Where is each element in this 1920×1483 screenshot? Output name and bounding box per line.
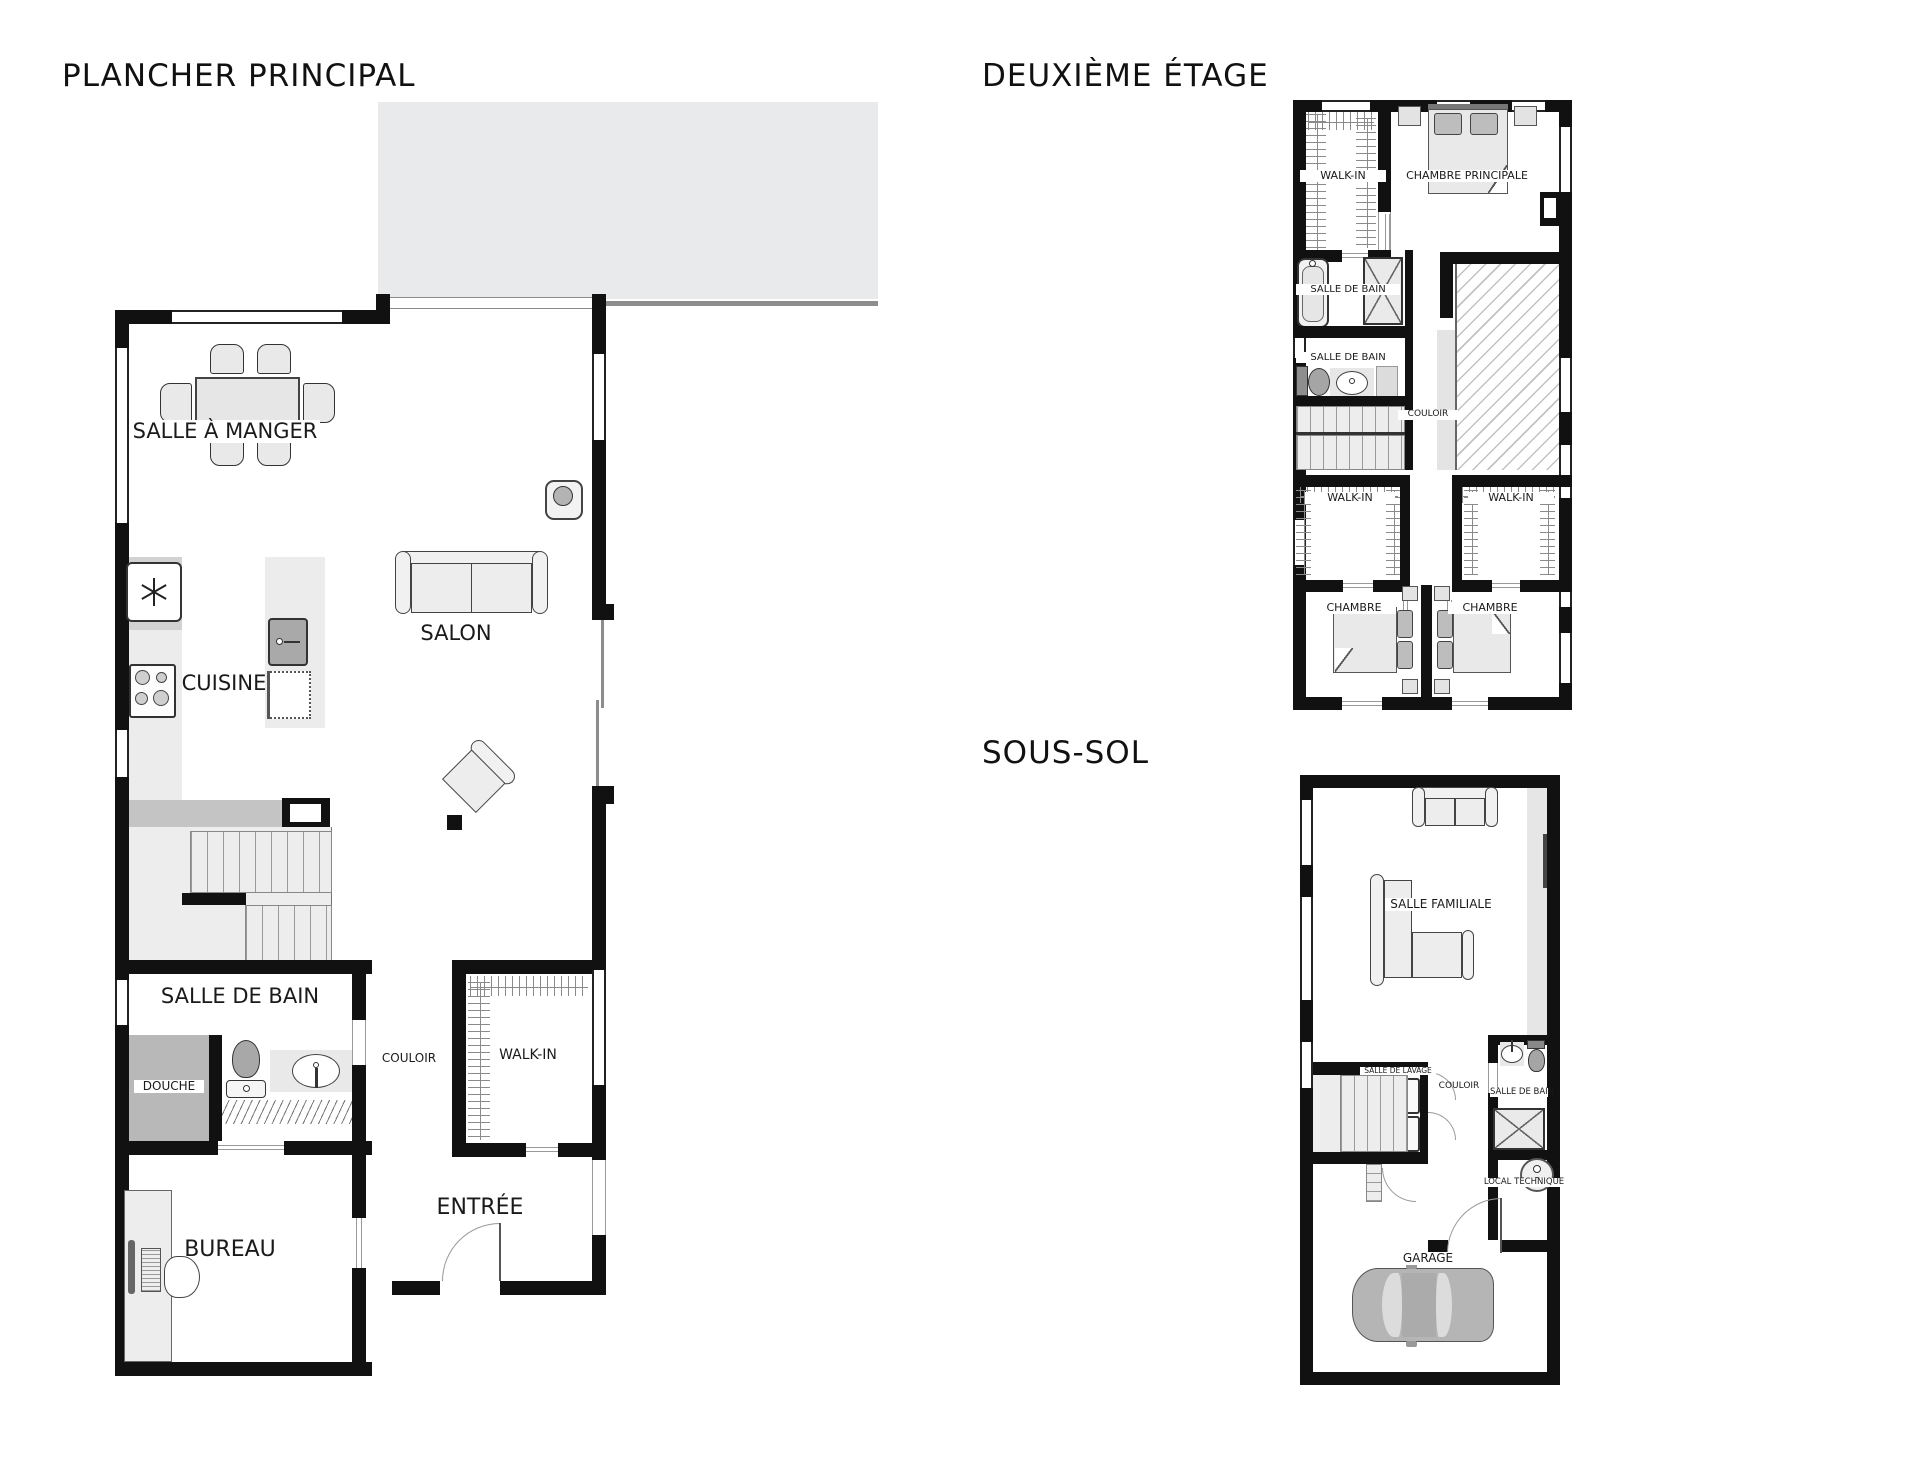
closet-rod-hatch [470, 976, 588, 996]
room-label-family: SALLE FAMILIALE [1385, 898, 1497, 911]
room-label-bathroom-ensuite: SALLE DE BAIN [1296, 284, 1400, 295]
dining-chair [210, 344, 244, 374]
stair-flight-lower [245, 905, 332, 963]
room-label-bathroom-second: SALLE DE BAIN [1296, 352, 1400, 363]
window [115, 730, 129, 777]
wall-segment [1559, 412, 1572, 445]
room-label-walkin-right: WALK-IN [1468, 492, 1554, 504]
wall-segment [1293, 697, 1342, 710]
window [1322, 100, 1370, 112]
wall-segment [592, 604, 614, 620]
window [592, 970, 606, 1085]
dining-chair [257, 344, 291, 374]
window [115, 348, 129, 523]
wall-segment [1300, 1000, 1313, 1042]
wall-segment [1400, 475, 1410, 588]
room-label-walkin-master: WALK-IN [1300, 170, 1386, 182]
stair-flight-upper [190, 831, 332, 893]
wall-segment [1488, 1150, 1557, 1160]
shower-icon [1493, 1108, 1545, 1150]
fridge [126, 562, 182, 622]
window [1559, 633, 1572, 683]
wall-segment [592, 786, 614, 804]
door-opening [352, 1020, 366, 1065]
blanket-fold [1335, 648, 1353, 672]
room-label-living: SALON [420, 622, 492, 645]
wall-segment [592, 294, 606, 354]
wall-segment [352, 1155, 366, 1218]
wall-segment [1488, 697, 1572, 710]
wall-segment [1488, 1035, 1498, 1063]
open-to-below-hatch [1455, 264, 1559, 470]
sofa-cushion [1455, 798, 1485, 826]
closet-hatch [222, 1100, 352, 1124]
shelf [1376, 366, 1398, 398]
sofa-arm [395, 551, 411, 614]
wall-segment [1421, 585, 1432, 697]
wall-segment [115, 960, 372, 974]
toilet-tank [1527, 1040, 1545, 1049]
wall-segment [1559, 498, 1572, 583]
front-door-leaf [499, 1223, 501, 1281]
wall-segment [1452, 580, 1492, 592]
deck-area [378, 102, 878, 299]
wall-segment [209, 1035, 222, 1141]
tv-icon [1543, 834, 1547, 888]
wall-segment [352, 1268, 366, 1376]
wall-segment [284, 1141, 372, 1155]
armchair [438, 737, 519, 818]
sofa-cushion [471, 563, 532, 613]
room-label-master-bedroom: CHAMBRE PRINCIPALE [1402, 170, 1532, 182]
wall-segment [1300, 775, 1313, 800]
floorplan-canvas: PLANCHER PRINCIPAL DEUXIÈME ÉTAGE SOUS-S… [0, 0, 1920, 1483]
nightstand [1434, 679, 1450, 694]
wall-segment [376, 294, 390, 324]
wall-segment [1443, 252, 1572, 264]
faucet-dot [1309, 260, 1316, 267]
main-floor-title: PLANCHER PRINCIPAL [62, 58, 416, 94]
room-label-hall-second: COULOIR [1398, 410, 1458, 420]
room-label-bathroom: SALLE DE BAIN [140, 985, 340, 1008]
stair-half-wall [129, 800, 282, 827]
room-label-entry: ENTRÉE [380, 1196, 580, 1220]
wall-segment [1378, 112, 1391, 212]
pillow [1437, 641, 1453, 669]
stair-flight [1340, 1075, 1408, 1152]
window [1559, 127, 1572, 192]
basement-title: SOUS-SOL [982, 735, 1149, 771]
pillow [1397, 610, 1413, 638]
window [1559, 358, 1572, 412]
wall-segment [1559, 607, 1572, 633]
closet-rod-hatch [1356, 118, 1376, 248]
nightstand [1514, 106, 1537, 126]
room-label-technical: LOCAL TECHNIQUE [1482, 1178, 1566, 1187]
window [1300, 800, 1313, 865]
toilet-flush-dot [243, 1085, 250, 1092]
dining-chair [160, 383, 192, 423]
door-opening [356, 1218, 362, 1268]
sliding-door-panel [596, 700, 599, 792]
burner-icon [135, 670, 150, 685]
sectional-sofa-seat [1412, 932, 1462, 978]
pillow [1437, 610, 1453, 638]
wall-segment [1293, 396, 1405, 406]
fireplace-burner-icon [553, 486, 573, 506]
window-sill [1342, 701, 1382, 706]
wall-segment [392, 1281, 440, 1295]
window [1300, 897, 1313, 1000]
door-opening [1343, 583, 1373, 588]
room-label-shower: DOUCHE [134, 1080, 204, 1093]
wall-segment [1559, 100, 1572, 127]
faucet-handle [1511, 1040, 1513, 1052]
pillow [1434, 113, 1462, 135]
door-swing [1428, 1112, 1456, 1140]
sliding-door-panel [601, 612, 604, 708]
nightstand [1402, 586, 1418, 601]
wall-segment [1547, 775, 1560, 1385]
toilet-icon [232, 1040, 260, 1078]
wall-segment [1313, 1152, 1428, 1164]
keyboard-icon [141, 1248, 161, 1292]
window-sill [592, 1160, 606, 1235]
burner-icon [135, 692, 148, 705]
media-wall [1527, 788, 1547, 1040]
wall-segment [115, 523, 129, 730]
pillow [1397, 641, 1413, 669]
door-swing [1447, 1198, 1502, 1253]
wall-segment [1420, 1075, 1428, 1152]
wall-niche [290, 804, 321, 822]
faucet-lever [284, 641, 300, 643]
wall-segment [1300, 1088, 1313, 1385]
wall-segment [1520, 580, 1572, 592]
wall-segment [452, 1143, 526, 1157]
car-icon [1352, 1268, 1494, 1342]
window [1559, 445, 1572, 498]
wall-segment [500, 1281, 606, 1295]
faucet-dot [1349, 378, 1355, 384]
wall-segment [1293, 326, 1405, 338]
wall-segment [1300, 865, 1313, 897]
window [115, 980, 129, 1025]
room-label-laundry: SALLE DE LAVAGE [1360, 1067, 1436, 1075]
structural-column [447, 815, 462, 830]
dishwasher [267, 671, 311, 719]
faucet-handle [315, 1068, 318, 1088]
stove [129, 664, 176, 718]
window-wall [390, 297, 592, 309]
window [592, 354, 606, 440]
wall-segment [1293, 475, 1405, 487]
wall-segment [452, 960, 592, 974]
wall-segment [452, 960, 466, 1157]
nightstand [1402, 679, 1418, 694]
wall-segment [352, 960, 366, 1020]
second-floor-title: DEUXIÈME ÉTAGE [982, 58, 1269, 94]
deck-railing-line [592, 301, 878, 306]
wall-segment [592, 804, 606, 970]
wall-segment [558, 1143, 606, 1157]
room-label-hall-basement: COULOIR [1430, 1082, 1488, 1092]
door-opening [218, 1145, 284, 1150]
burner-icon [153, 690, 169, 706]
nightstand [1398, 106, 1421, 126]
wall-segment [115, 310, 129, 348]
wall-segment [115, 1141, 218, 1155]
window-sill [1452, 701, 1488, 706]
toilet-icon [1308, 368, 1330, 396]
monitor-icon [128, 1240, 135, 1294]
wall-segment [1440, 252, 1453, 318]
sofa-cushion [1425, 798, 1455, 826]
wall-segment [182, 893, 246, 905]
front-door-swing [442, 1223, 500, 1281]
room-label-bathroom-basement: SALLE DE BAIN [1490, 1088, 1548, 1097]
room-label-walkin-left: WALK-IN [1305, 492, 1395, 504]
window [172, 310, 342, 324]
chase [1437, 330, 1455, 470]
closet-rod-hatch [1308, 112, 1374, 130]
window [1300, 1042, 1313, 1088]
pillow [1470, 113, 1498, 135]
sofa-cushion [411, 563, 472, 613]
toilet-icon [1528, 1049, 1545, 1072]
sectional-sofa-back [1370, 874, 1384, 986]
door-opening [1385, 214, 1390, 252]
door-swing [1382, 1168, 1416, 1202]
stair-flight-lower [1296, 435, 1405, 470]
room-label-walkin: WALK-IN [468, 1048, 588, 1063]
room-label-dining: SALLE À MANGER [130, 420, 320, 443]
wall-segment [115, 1362, 372, 1376]
dining-chair [303, 383, 335, 423]
wall-segment [1300, 1372, 1560, 1385]
burner-icon [156, 672, 167, 683]
nightstand [1434, 586, 1450, 601]
car-mirror [1406, 1341, 1417, 1347]
wall-segment [1405, 250, 1413, 470]
sofa-arm [532, 551, 548, 614]
sofa-arm [1412, 787, 1425, 827]
faucet-dot [276, 638, 283, 645]
stair-flight-upper [1296, 406, 1405, 434]
wall-segment [1452, 475, 1462, 588]
room-label-bedroom-left: CHAMBRE [1312, 602, 1396, 614]
wall-niche [1544, 198, 1556, 218]
wall-segment [1502, 1240, 1547, 1252]
snowflake-icon [134, 572, 174, 612]
stair-flight-lower [1366, 1164, 1382, 1202]
room-label-garage: GARAGE [1398, 1252, 1458, 1265]
door-opening [526, 1147, 558, 1152]
wall-segment [1559, 192, 1572, 358]
door-leaf [1500, 1198, 1502, 1253]
door-opening [1492, 583, 1520, 588]
wall-segment [1382, 697, 1452, 710]
room-label-hall: COULOIR [366, 1052, 452, 1065]
sectional-sofa-seat [1384, 880, 1412, 978]
wall-segment [592, 440, 606, 610]
room-label-kitchen: CUISINE [178, 672, 270, 695]
wall-segment [115, 777, 129, 980]
wall-segment [1293, 580, 1343, 592]
sectional-sofa-arm [1462, 930, 1474, 980]
room-label-bedroom-right: CHAMBRE [1448, 602, 1532, 614]
desk-chair [164, 1256, 200, 1298]
wall-segment [1452, 475, 1572, 487]
sofa-arm [1485, 787, 1498, 827]
toilet-tank [1296, 366, 1308, 396]
